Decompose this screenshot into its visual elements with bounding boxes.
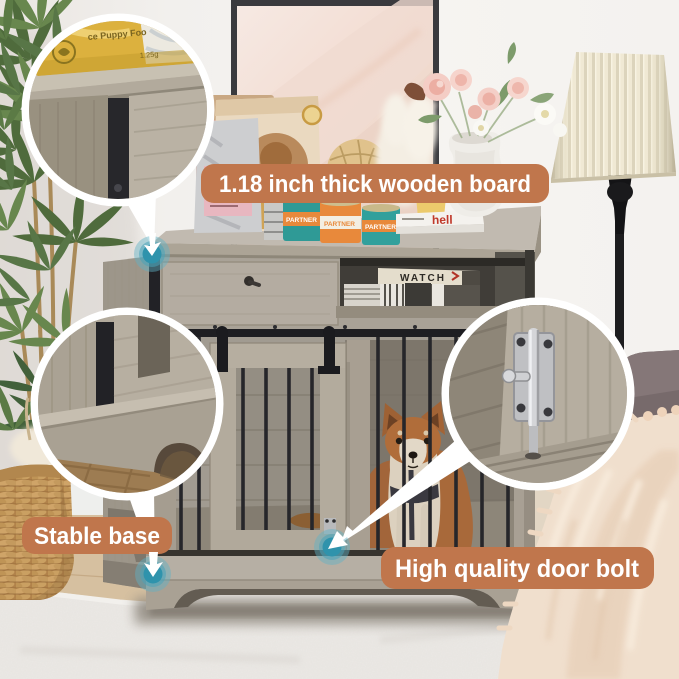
svg-text:1.18 inch thick wooden board: 1.18 inch thick wooden board (219, 171, 531, 198)
svg-text:1.25g: 1.25g (139, 49, 158, 60)
svg-text:PARTNER: PARTNER (365, 224, 396, 231)
svg-text:WATCH: WATCH (400, 273, 446, 284)
svg-text:PARTNER: PARTNER (324, 221, 355, 228)
svg-text:hell: hell (432, 213, 453, 227)
svg-text:PARTNER: PARTNER (286, 217, 317, 224)
svg-text:Stable base: Stable base (34, 523, 160, 550)
svg-text:High quality door bolt: High quality door bolt (395, 555, 640, 583)
